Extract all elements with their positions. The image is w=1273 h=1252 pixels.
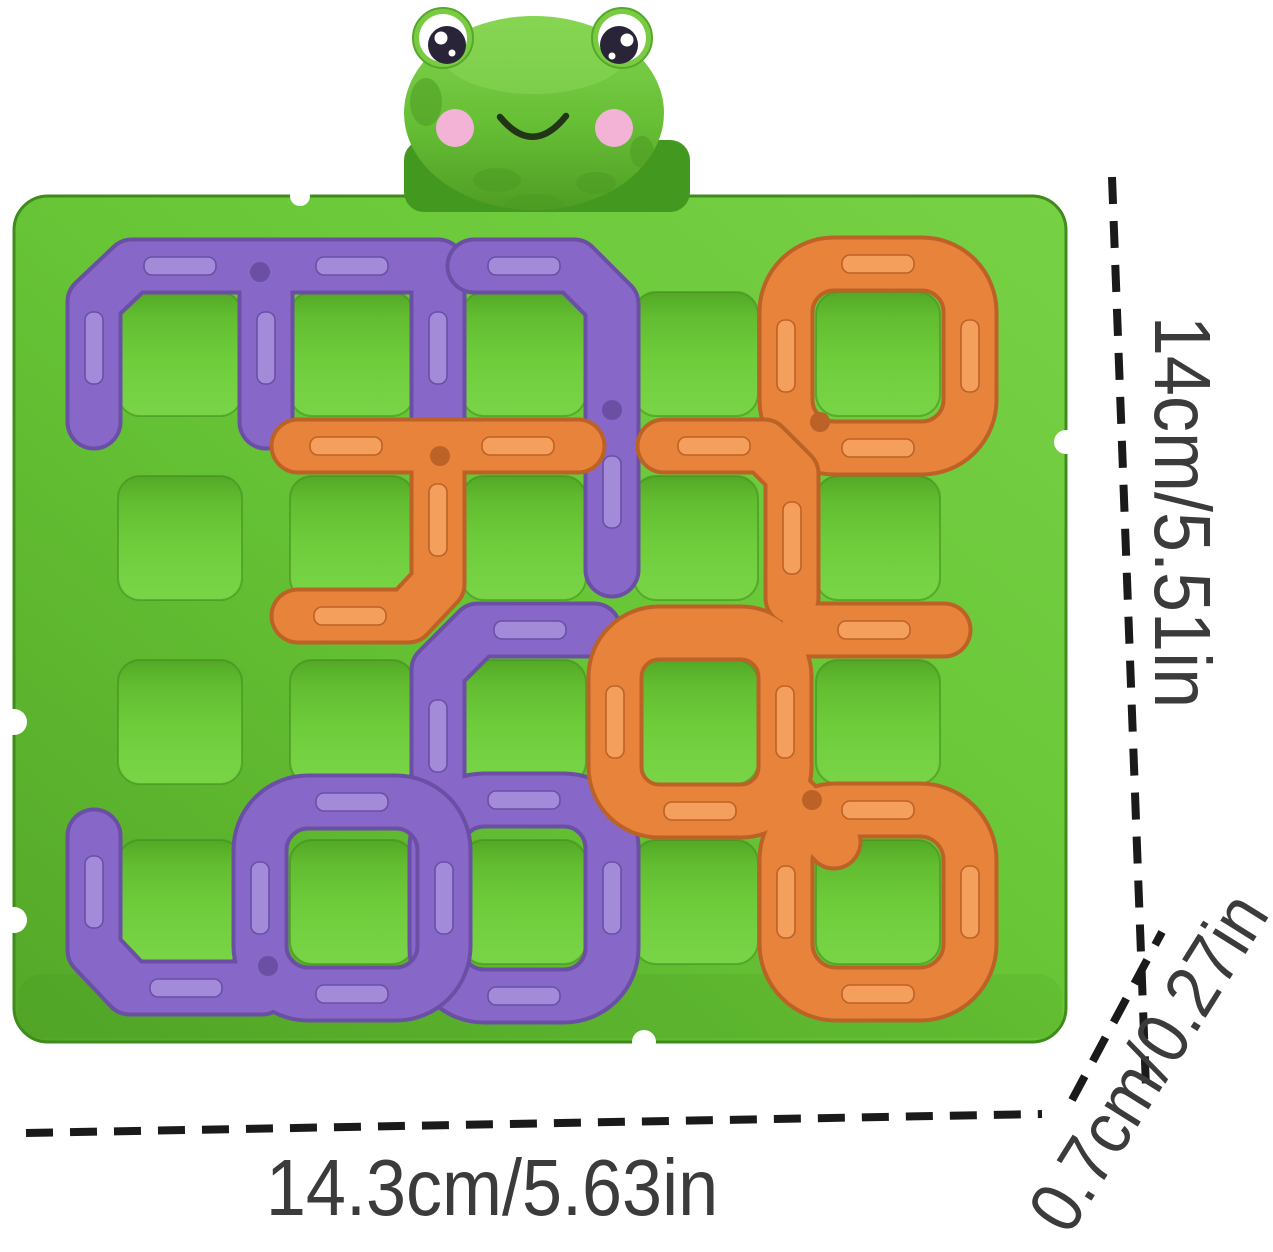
board-cell bbox=[634, 840, 758, 964]
piece-dimple bbox=[802, 790, 822, 810]
piece-ridge bbox=[144, 257, 216, 275]
frog-spot bbox=[473, 168, 521, 192]
piece-ridge bbox=[429, 700, 447, 772]
board-cell bbox=[118, 292, 242, 416]
board-cell bbox=[118, 476, 242, 600]
board-cell bbox=[290, 660, 414, 784]
product-image: 14cm/5.51in 14.3cm/5.63in 0.7cm/0.27in bbox=[0, 0, 1273, 1252]
piece-ridge bbox=[429, 484, 447, 556]
eye-glint bbox=[621, 34, 634, 47]
piece-ridge bbox=[838, 621, 910, 639]
eye-glint bbox=[609, 53, 616, 60]
piece-dimple bbox=[258, 956, 278, 976]
piece-ridge bbox=[85, 856, 103, 928]
board-cell bbox=[290, 292, 414, 416]
piece-dimple bbox=[430, 446, 450, 466]
piece-ridge bbox=[316, 793, 388, 811]
board-cell bbox=[462, 476, 586, 600]
piece-ridge bbox=[776, 686, 794, 758]
piece-ridge bbox=[783, 502, 801, 574]
piece-ridge bbox=[842, 985, 914, 1003]
piece-ridge bbox=[435, 862, 453, 934]
board-cell bbox=[462, 660, 586, 784]
board-cell bbox=[634, 292, 758, 416]
board-cell bbox=[462, 840, 586, 964]
board-cell bbox=[816, 660, 940, 784]
width-dimension-label: 14.3cm/5.63in bbox=[266, 1142, 718, 1234]
piece-ridge bbox=[482, 437, 554, 455]
piece-ridge bbox=[316, 257, 388, 275]
frog-mascot bbox=[404, 8, 690, 218]
width-dimension-line bbox=[26, 1114, 1042, 1133]
piece-ridge bbox=[488, 257, 560, 275]
eye-glint bbox=[435, 32, 448, 45]
piece-ridge bbox=[777, 320, 795, 392]
board-edge-notch bbox=[1, 907, 27, 933]
piece-dimple bbox=[810, 412, 830, 432]
piece-ridge bbox=[842, 439, 914, 457]
piece-ridge bbox=[603, 862, 621, 934]
piece-ridge bbox=[494, 621, 566, 639]
piece-ridge bbox=[251, 862, 269, 934]
piece-ridge bbox=[488, 987, 560, 1005]
piece-ridge bbox=[257, 312, 275, 384]
frog-cheek-left bbox=[436, 109, 474, 147]
piece-ridge bbox=[606, 686, 624, 758]
frog-eye-right bbox=[592, 8, 652, 68]
piece-ridge bbox=[842, 255, 914, 273]
piece-ridge bbox=[603, 456, 621, 528]
board-edge-notch bbox=[1054, 430, 1078, 454]
board-cell bbox=[118, 840, 242, 964]
piece-ridge bbox=[678, 437, 750, 455]
piece-ridge bbox=[150, 979, 222, 997]
board-cell bbox=[816, 476, 940, 600]
height-dimension-label: 14cm/5.51in bbox=[1136, 316, 1228, 708]
frog-cheek-right bbox=[595, 109, 633, 147]
piece-ridge bbox=[314, 607, 386, 625]
board-cell bbox=[462, 292, 586, 416]
piece-ridge bbox=[310, 437, 382, 455]
board-cell bbox=[634, 476, 758, 600]
frog-spot bbox=[410, 78, 442, 126]
piece-ridge bbox=[85, 312, 103, 384]
frog-spot bbox=[576, 172, 616, 194]
piece-ridge bbox=[316, 985, 388, 1003]
piece-dimple bbox=[250, 262, 270, 282]
piece-ridge bbox=[961, 866, 979, 938]
piece-ridge bbox=[842, 801, 914, 819]
piece-ridge bbox=[961, 320, 979, 392]
board-cell bbox=[634, 660, 758, 784]
piece-ridge bbox=[777, 866, 795, 938]
piece-ridge bbox=[488, 791, 560, 809]
board-edge-notch bbox=[1, 709, 27, 735]
eye-glint bbox=[449, 50, 456, 57]
frog-eye-left bbox=[413, 8, 473, 68]
board-cell bbox=[816, 292, 940, 416]
board-cell bbox=[290, 476, 414, 600]
board-cell bbox=[118, 660, 242, 784]
board-edge-notch bbox=[290, 186, 310, 206]
board-edge-notch bbox=[632, 1030, 656, 1054]
puzzle-board-graphic bbox=[0, 0, 1273, 1252]
piece-ridge bbox=[429, 312, 447, 384]
piece-ridge bbox=[664, 802, 736, 820]
piece-dimple bbox=[602, 400, 622, 420]
board-cell bbox=[290, 840, 414, 964]
